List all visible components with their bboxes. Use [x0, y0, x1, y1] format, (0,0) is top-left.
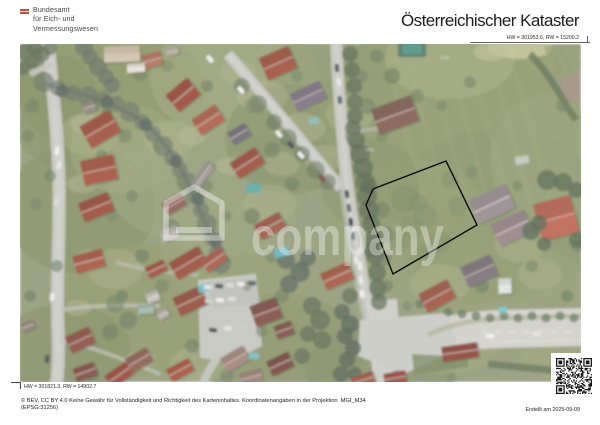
- svg-text:company: company: [251, 207, 444, 267]
